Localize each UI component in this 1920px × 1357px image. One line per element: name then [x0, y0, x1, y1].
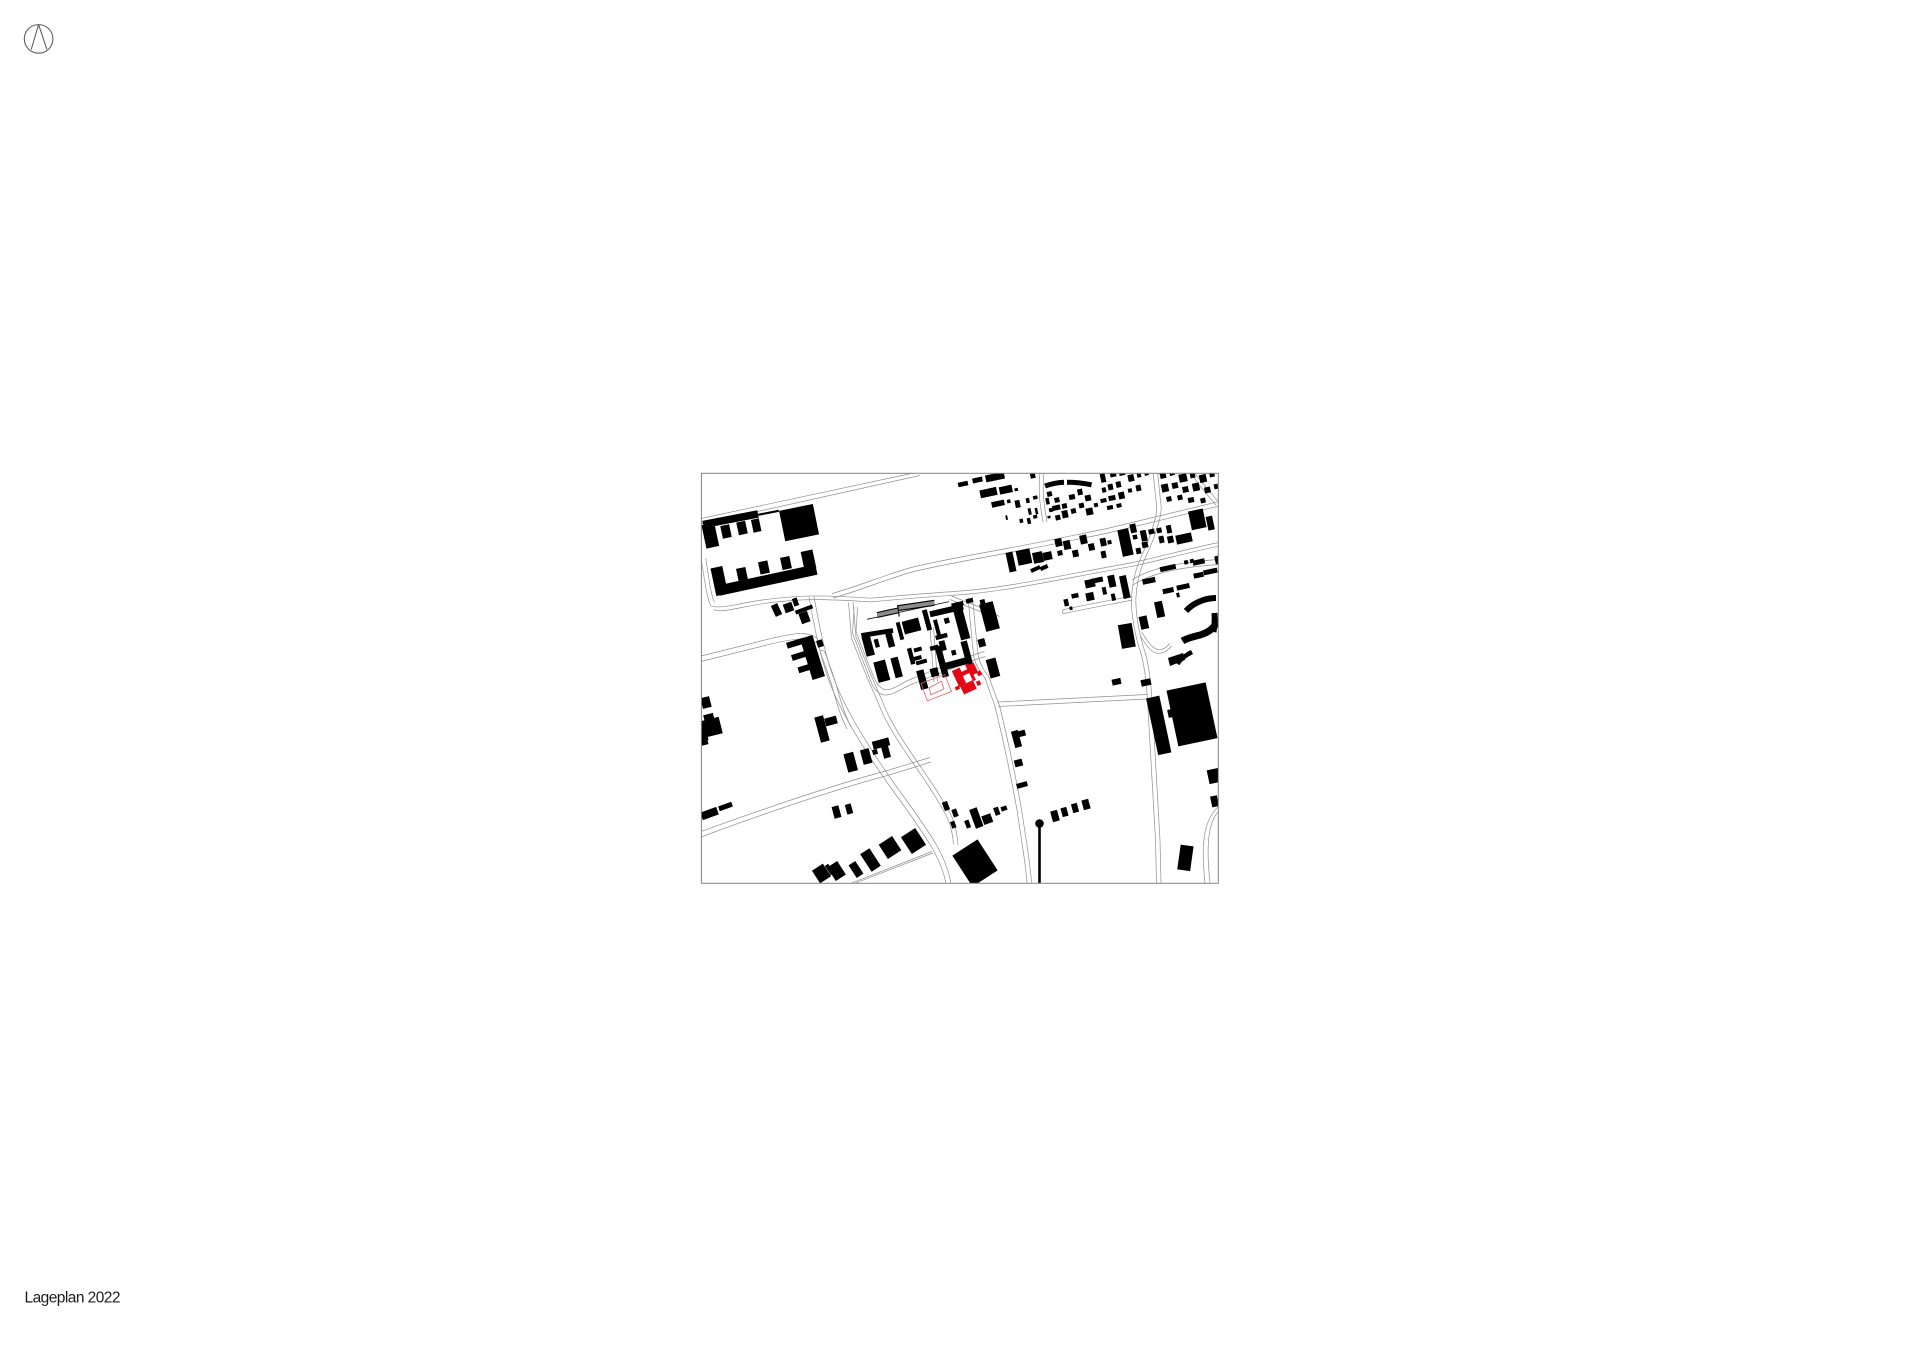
svg-text:Lageplan 2022: Lageplan 2022	[25, 1290, 120, 1307]
